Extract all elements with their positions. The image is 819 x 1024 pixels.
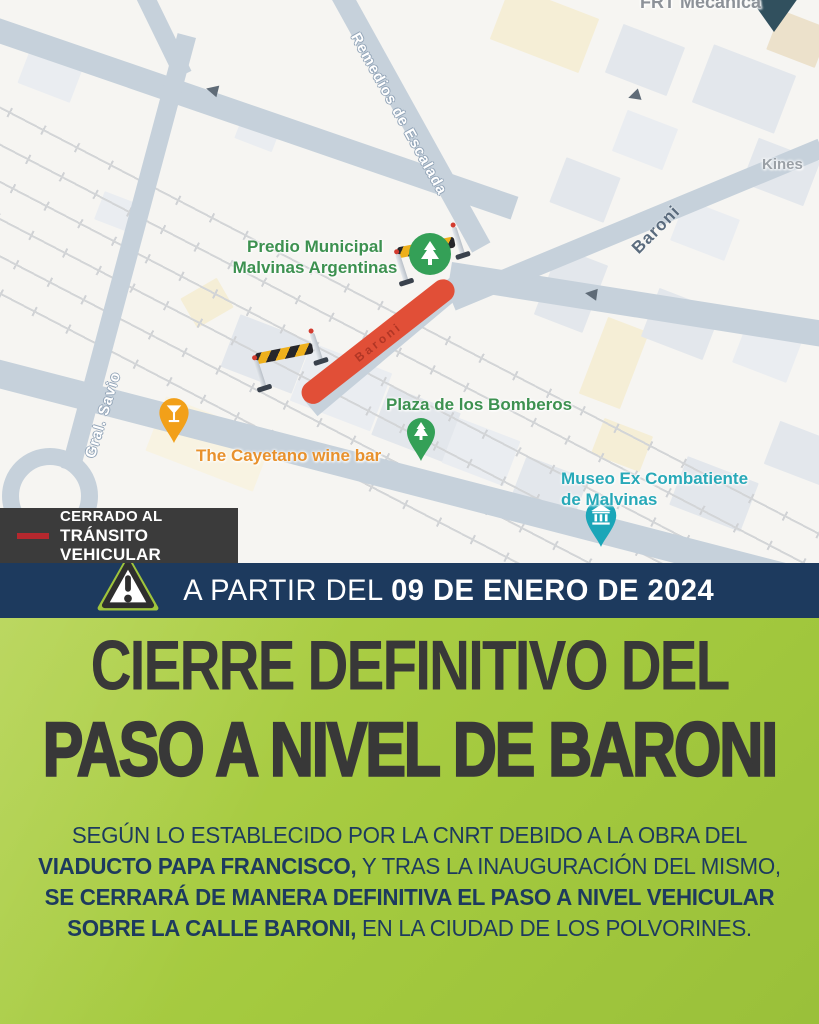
- announcement-paragraph: SEGÚN LO ESTABLECIDO POR LA CNRT DEBIDO …: [12, 820, 806, 944]
- road-closure-poster: Baroni: [0, 0, 819, 1024]
- one-way-arrow-icon: [584, 287, 598, 301]
- building-block: [549, 157, 620, 223]
- barrier-stripe: [255, 342, 314, 364]
- building-block: [612, 110, 678, 170]
- headline-line1: CIERRE DEFINITIVO DEL: [8, 625, 811, 707]
- closed-traffic-badge: CERRADO AL TRÁNSITO VEHICULAR: [0, 508, 238, 563]
- poi-label-kines: Kines: [762, 156, 803, 173]
- bar-pin-icon: [156, 396, 192, 444]
- park-pin-icon: [404, 416, 438, 462]
- red-line-icon: [17, 533, 49, 539]
- building-block: [490, 0, 599, 73]
- poi-label-wine-bar: The Cayetano wine bar: [196, 446, 381, 466]
- building-block: [764, 421, 819, 485]
- closed-traffic-text: CERRADO AL TRÁNSITO VEHICULAR: [60, 507, 238, 564]
- building-block: [692, 44, 796, 133]
- poi-label-museo: Museo Ex Combatiente de Malvinas: [561, 468, 748, 510]
- banner-text: A PARTIR DEL 09 DE ENERO DE 2024: [183, 574, 714, 608]
- announcement-section: CIERRE DEFINITIVO DEL PASO A NIVEL DE BA…: [0, 618, 819, 1024]
- poi-label-frt-mecanica: FRT Mecánica: [640, 0, 761, 13]
- map-section: Baroni: [0, 0, 819, 563]
- building-block: [605, 24, 685, 96]
- poi-label-plaza-bomberos: Plaza de los Bomberos: [386, 395, 572, 415]
- date-banner: A PARTIR DEL 09 DE ENERO DE 2024: [0, 563, 819, 618]
- headline-line2: PASO A NIVEL DE BARONI: [8, 707, 811, 794]
- one-way-arrow-icon: [626, 88, 641, 103]
- poi-label-predio: Predio Municipal Malvinas Argentinas: [215, 236, 415, 278]
- building-block: [579, 317, 649, 409]
